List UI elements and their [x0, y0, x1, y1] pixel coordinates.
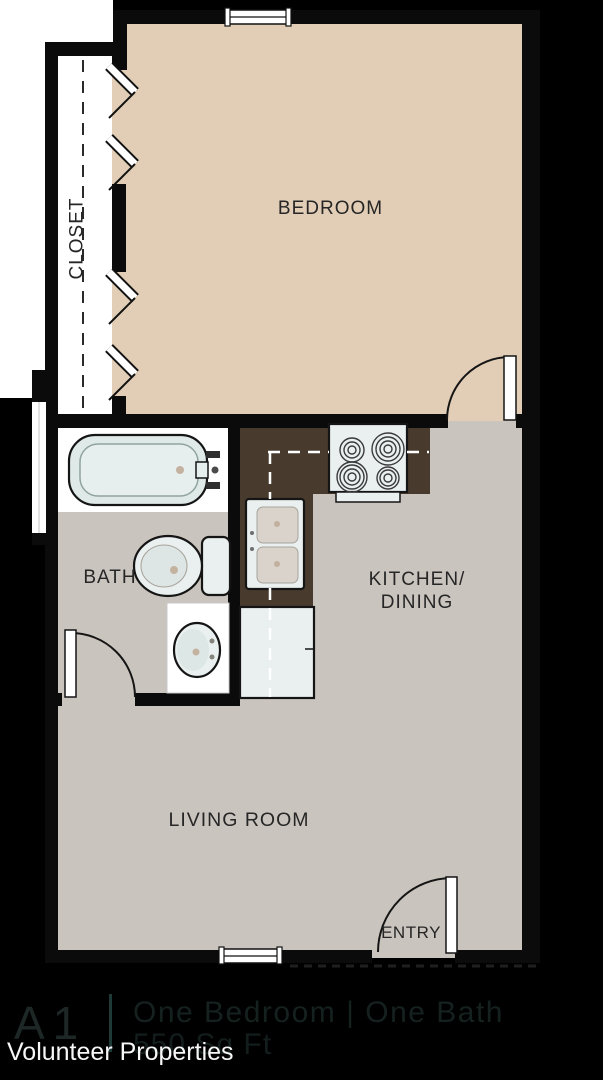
wall-left [45, 42, 58, 963]
wall-bedroom-divider-stub [516, 414, 540, 428]
floorplan-page: BEDROOM CLOSET BATH KITCHEN/ DINING LIVI… [0, 0, 603, 1080]
entry-threshold [372, 950, 455, 958]
bath-label: BATH [70, 566, 150, 589]
bedroom-door-threshold2 [448, 421, 516, 428]
kitchen-label-line2: DINING [381, 592, 454, 613]
stove-icon [329, 424, 407, 502]
wall-bottom-right [455, 950, 540, 963]
wall-bottom-left [45, 950, 372, 963]
wall-right [522, 10, 540, 963]
bathtub-icon [69, 435, 220, 505]
bedroom-window-icon [225, 8, 291, 26]
closet-stub-3 [112, 396, 126, 414]
bedroom-label: BEDROOM [253, 197, 408, 220]
kitchen-label-line1: KITCHEN/ [369, 569, 466, 590]
refrigerator-icon [240, 607, 314, 698]
vanity-sink-icon [167, 603, 229, 693]
floorplan-title: One Bedroom | One Bath [133, 996, 504, 1030]
kitchen-sink-icon [246, 499, 304, 589]
living-window-icon [219, 947, 282, 964]
entry-label: ENTRY [376, 921, 446, 944]
floorplan-drawing [0, 0, 603, 1080]
wall-bath-bottom-left [45, 693, 62, 706]
wall-top-bedroom [113, 10, 540, 24]
company-name: Volunteer Properties [7, 1038, 234, 1067]
closet-stub-2 [112, 184, 126, 272]
closet-label: CLOSET [66, 194, 89, 284]
kitchen-label: KITCHEN/ DINING [347, 568, 487, 614]
wall-bath-bottom-right [135, 693, 240, 706]
living-room-label: LIVING ROOM [159, 809, 319, 832]
bath-window-icon [32, 402, 46, 533]
margin-left [0, 0, 45, 398]
